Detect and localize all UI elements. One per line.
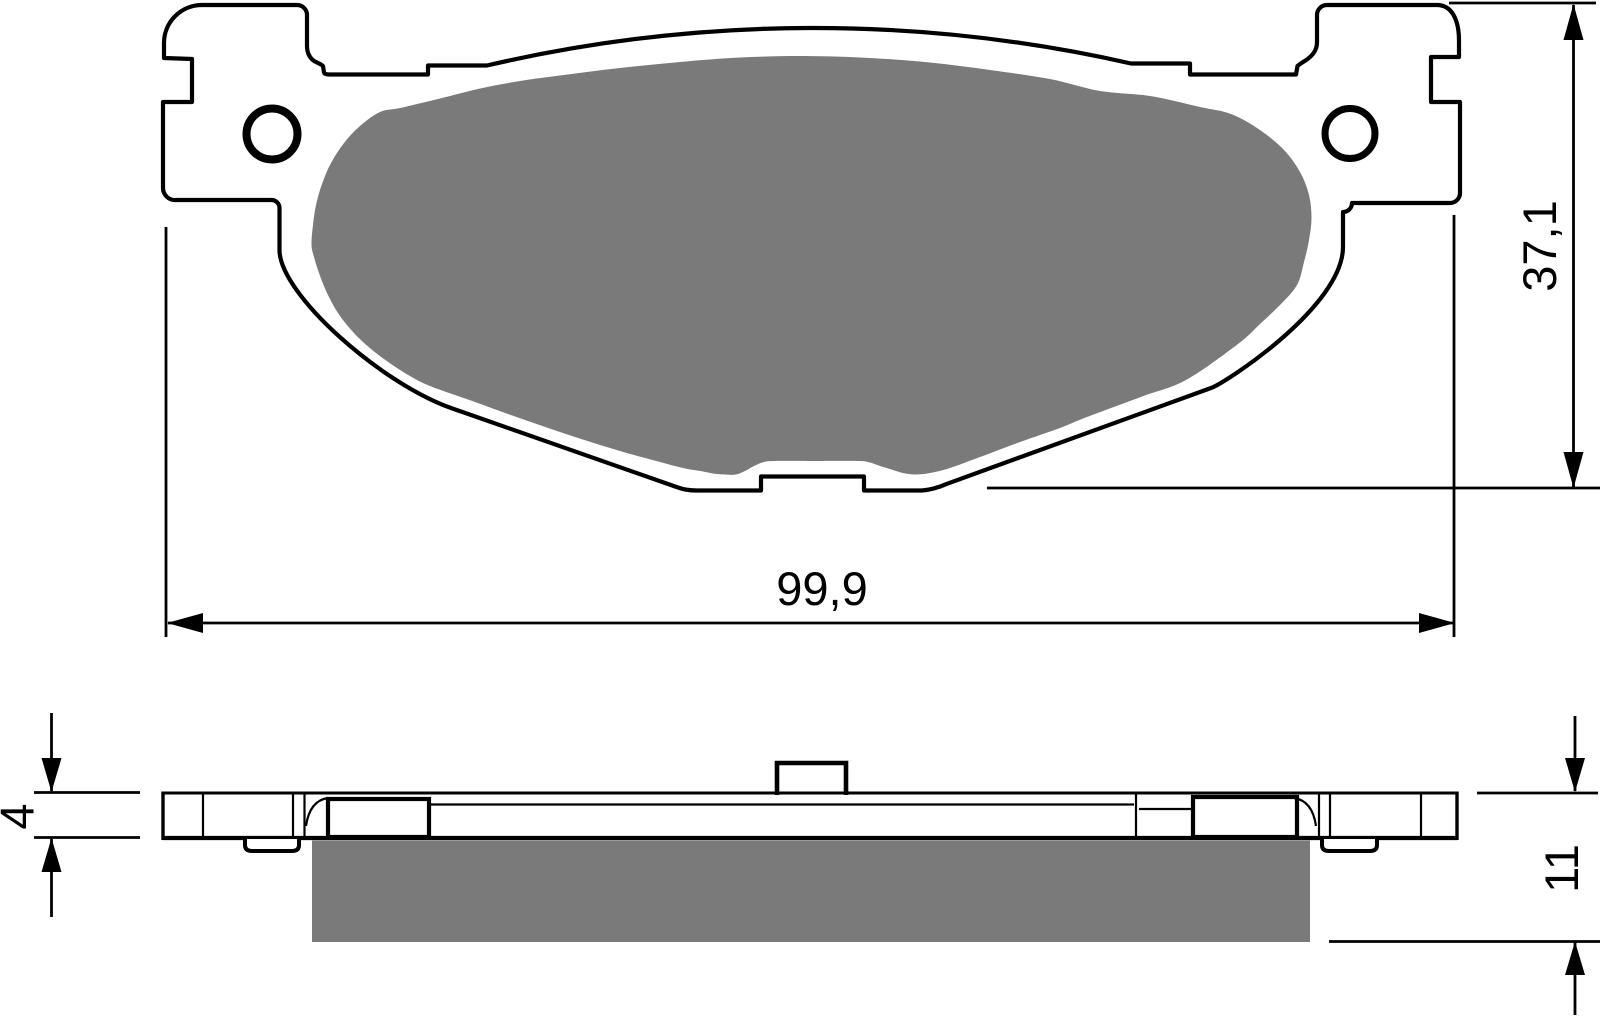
svg-text:4: 4 — [0, 803, 44, 829]
svg-text:99,9: 99,9 — [776, 562, 867, 615]
svg-text:11: 11 — [1535, 844, 1588, 893]
svg-text:37,1: 37,1 — [1513, 200, 1566, 291]
